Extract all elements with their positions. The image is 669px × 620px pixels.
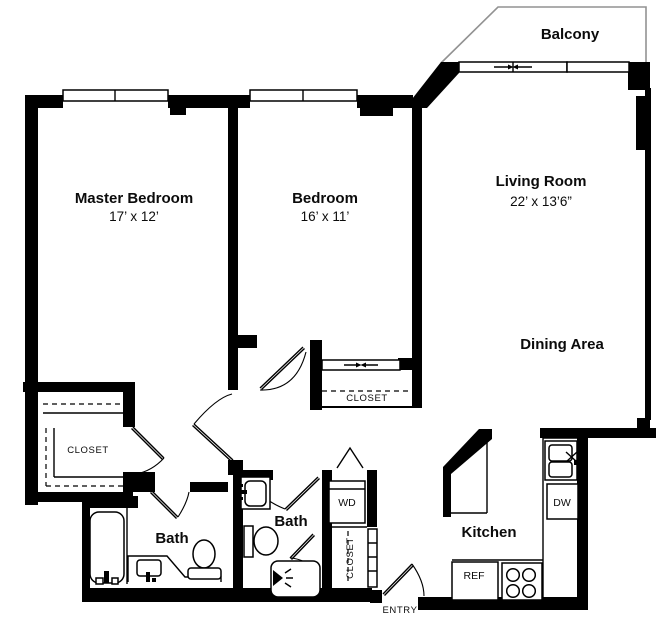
wall-top-mid	[168, 95, 250, 108]
entry-label: ENTRY	[382, 605, 417, 616]
burner-3	[507, 585, 520, 598]
tub-handle-left	[96, 578, 103, 584]
wall-kitchen-diag-leg	[443, 467, 451, 517]
toilet-bowl-second	[254, 527, 278, 555]
kitchen-label: Kitchen	[461, 524, 516, 541]
sink2-faucet	[238, 490, 247, 494]
wall-left-outer	[25, 95, 38, 505]
refrigerator-label: REF	[464, 570, 485, 582]
sink2-knob-a	[239, 484, 243, 487]
sink-knob	[152, 578, 156, 582]
wall-bedroom-closet-left	[310, 340, 322, 410]
balcony-label: Balcony	[541, 26, 600, 43]
doors	[132, 347, 425, 596]
master-bedroom-door	[193, 394, 234, 462]
wall-wd-right	[367, 470, 377, 527]
wall-living-left	[412, 108, 422, 408]
master-bath-label: Bath	[155, 530, 188, 547]
toilet-bowl-master	[193, 540, 215, 568]
master-bedroom-label: Master Bedroom	[75, 190, 193, 207]
wall-step-b	[360, 108, 393, 116]
sink-second-bath	[245, 481, 266, 506]
bedroom-door	[260, 347, 306, 390]
wall-bath1-left	[82, 500, 90, 588]
second-bath-label: Bath	[274, 513, 307, 530]
wall-hall-mid	[190, 482, 228, 492]
master-bedroom-dims: 17’ x 12’	[109, 209, 159, 224]
hall-closet-label: CLOSET	[345, 537, 356, 579]
hall-closet-door-panel	[368, 529, 377, 587]
wall-closet-top	[23, 382, 135, 392]
burner-1	[507, 569, 520, 582]
wall-bedroom-partition	[228, 108, 238, 390]
toilet-tank-second	[244, 526, 253, 557]
floor-plan: Balcony Master Bedroom 17’ x 12’ Bedroom…	[0, 0, 669, 620]
balcony-window	[567, 62, 629, 72]
wall-bedroom-bottom	[237, 335, 257, 348]
living-room-dims: 22’ x 13’6”	[510, 194, 572, 209]
wall-hall-bottom	[82, 588, 372, 602]
wall-dining-bottom	[540, 428, 656, 438]
tub-faucet	[104, 571, 109, 583]
living-room-label: Living Room	[496, 173, 587, 190]
dining-area-label: Dining Area	[520, 336, 604, 353]
wd-bifold-chevron	[337, 448, 363, 468]
sink2-knob-b	[239, 497, 243, 500]
kitchen-sink-basin-2	[549, 462, 572, 477]
wall-right-pilaster	[636, 96, 647, 150]
master-bath-fixtures	[90, 512, 221, 584]
master-closet-door	[132, 427, 165, 474]
wall-step-a	[170, 108, 186, 115]
wall-closet-right	[123, 382, 135, 427]
tub-handle-right	[112, 578, 118, 584]
master-bath-door	[151, 491, 190, 519]
dishwasher-label: DW	[553, 497, 571, 509]
wall-top-right	[357, 95, 413, 108]
floor-plan-canvas: Balcony Master Bedroom 17’ x 12’ Bedroom…	[0, 0, 669, 620]
wall-top-left	[25, 95, 63, 108]
washer-dryer-label: WD	[338, 497, 356, 509]
bedroom-closet-label: CLOSET	[346, 393, 388, 404]
second-bath-fixtures	[238, 477, 320, 597]
bedroom-dims: 16’ x 11’	[301, 209, 350, 224]
bedroom-label: Bedroom	[292, 190, 358, 207]
sink-faucet	[146, 572, 150, 582]
burner-4	[523, 585, 536, 598]
entry-door	[383, 564, 424, 596]
wall-diagonal-top	[405, 62, 459, 108]
burner-2	[523, 569, 536, 582]
wall-tub-top	[82, 496, 138, 508]
toilet-base-master	[188, 568, 221, 579]
wall-closet-corner	[123, 472, 155, 492]
master-closet-label: CLOSET	[67, 445, 109, 456]
kitchen-faucet-base	[574, 460, 579, 465]
wall-corner-topright	[628, 62, 650, 90]
kitchen-sink-basin-1	[549, 445, 572, 461]
